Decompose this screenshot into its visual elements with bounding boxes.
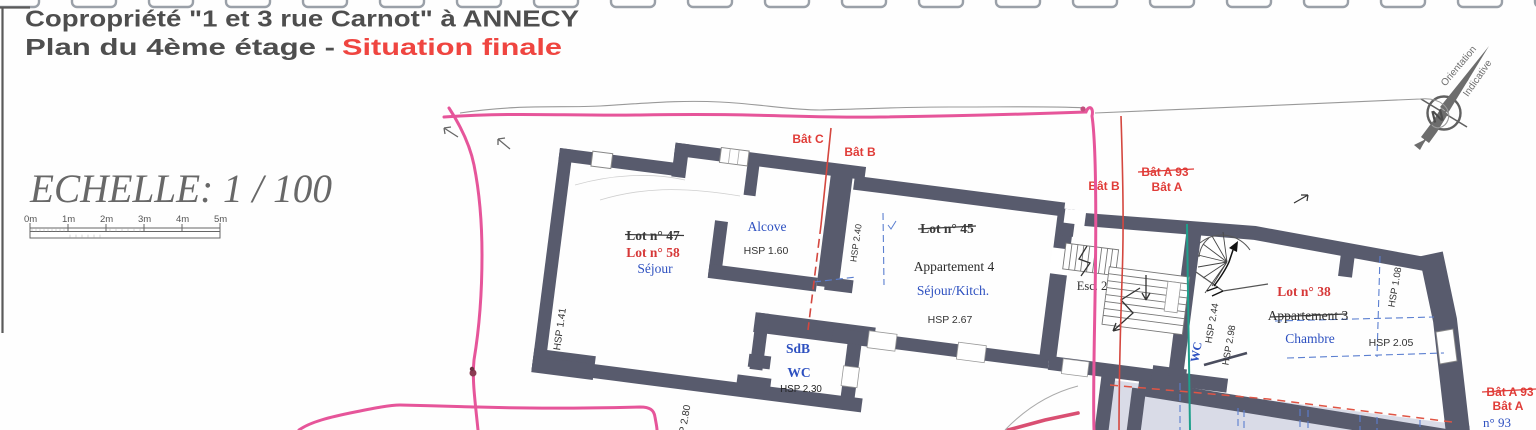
svg-text:3m: 3m [138,214,151,225]
svg-text:Bât B: Bât B [844,145,876,159]
svg-text:Séjour: Séjour [637,261,673,276]
svg-text:Bât A: Bât A [1152,180,1183,194]
svg-text:n° 93: n° 93 [1483,415,1511,430]
svg-text:Bât B: Bât B [1088,179,1120,193]
svg-text:HSP 1.60: HSP 1.60 [744,245,789,257]
svg-text:SdB: SdB [786,341,810,356]
svg-text:Bât A: Bât A [1493,399,1524,413]
svg-text:Esc. 2: Esc. 2 [1077,279,1108,293]
svg-text:1m: 1m [62,214,75,225]
svg-text:Alcove: Alcove [748,219,787,234]
svg-text:Plan du 4ème étage -: Plan du 4ème étage - [25,34,335,60]
svg-text:WC: WC [787,365,810,380]
svg-text:Chambre: Chambre [1285,331,1335,346]
svg-text:Lot n° 58: Lot n° 58 [626,245,680,260]
svg-text:5m: 5m [214,214,227,225]
svg-text:HSP 2.05: HSP 2.05 [1369,337,1414,349]
svg-text:Appartement 4: Appartement 4 [914,259,995,274]
svg-text:Bât C: Bât C [792,132,824,146]
svg-text:4m: 4m [176,214,189,225]
svg-text:Lot n° 38: Lot n° 38 [1277,284,1331,299]
svg-text:HSP 2.67: HSP 2.67 [928,314,973,326]
svg-text:Séjour/Kitch.: Séjour/Kitch. [917,283,989,298]
svg-text:2m: 2m [100,214,113,225]
svg-text:HSP 2.30: HSP 2.30 [780,384,822,395]
svg-text:Situation finale: Situation finale [342,34,562,60]
svg-text:0m: 0m [24,214,37,225]
svg-text:ECHELLE: 1 / 100: ECHELLE: 1 / 100 [29,166,332,211]
svg-text:Copropriété "1 et 3 rue Carnot: Copropriété "1 et 3 rue Carnot" à ANNECY [25,6,579,32]
